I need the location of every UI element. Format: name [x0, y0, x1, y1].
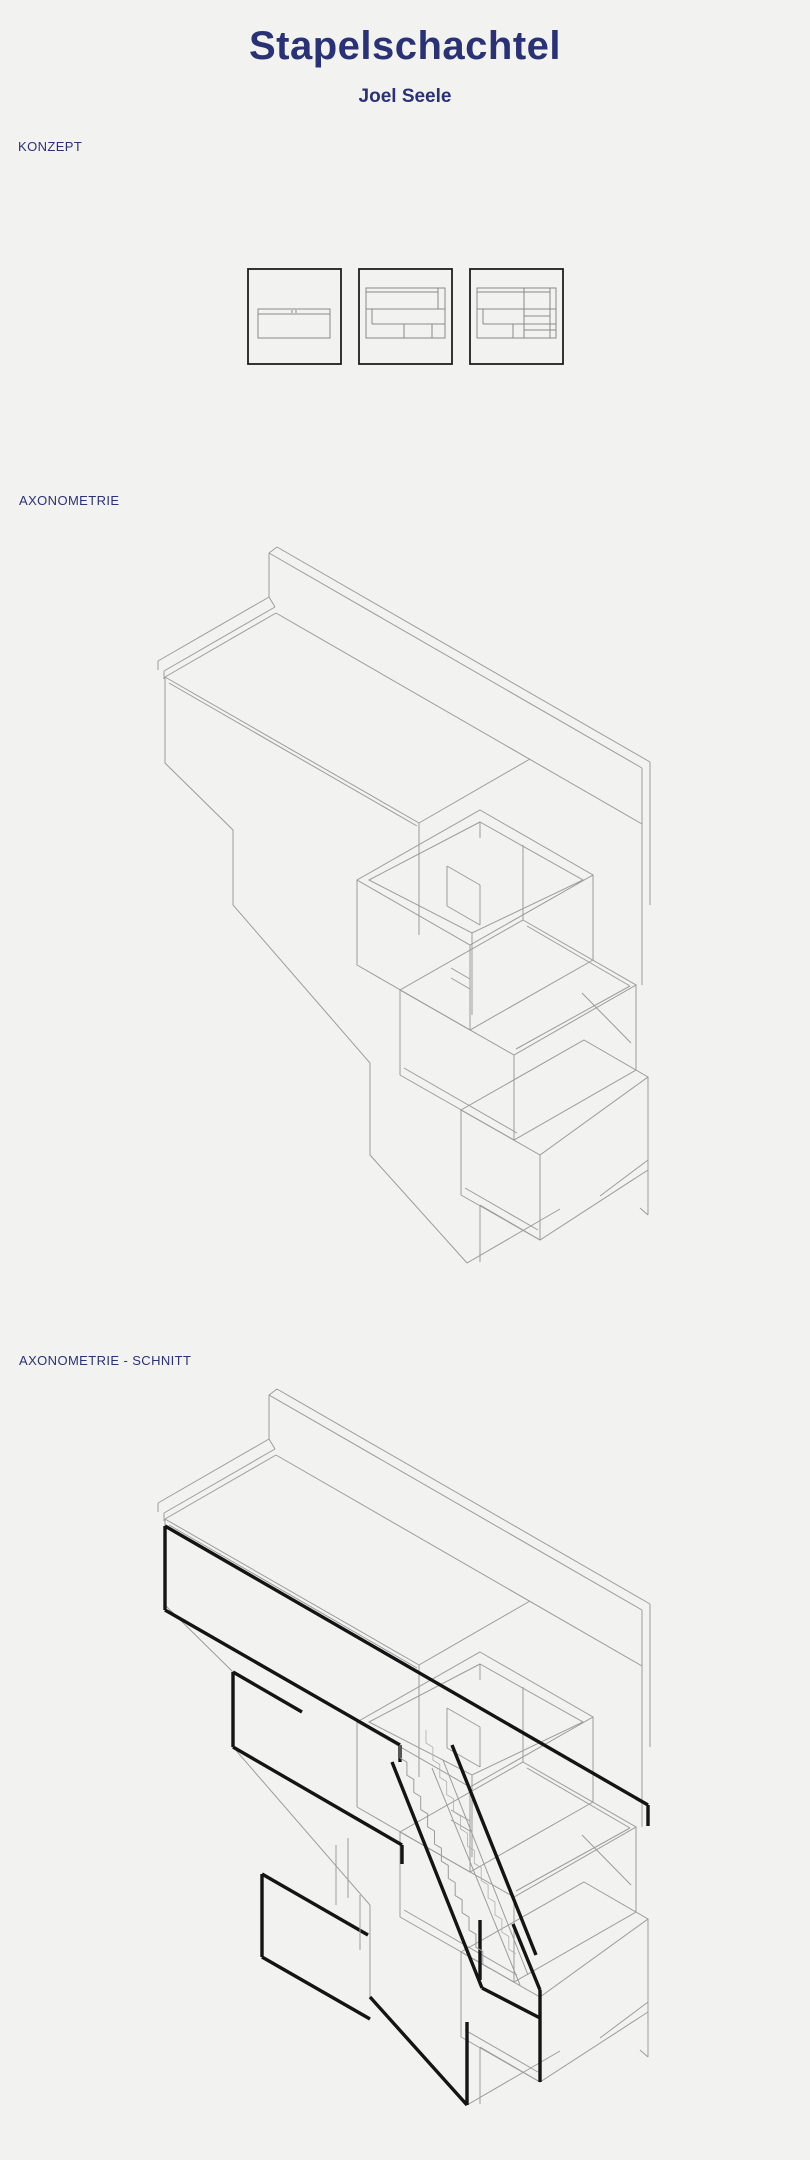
poster: { "page": { "title": "Stapelschachtel", …: [0, 0, 810, 2160]
staircase: [336, 1730, 528, 1985]
section-cut-lines: [165, 1526, 648, 2105]
axonometric-drawings: [0, 0, 810, 2160]
